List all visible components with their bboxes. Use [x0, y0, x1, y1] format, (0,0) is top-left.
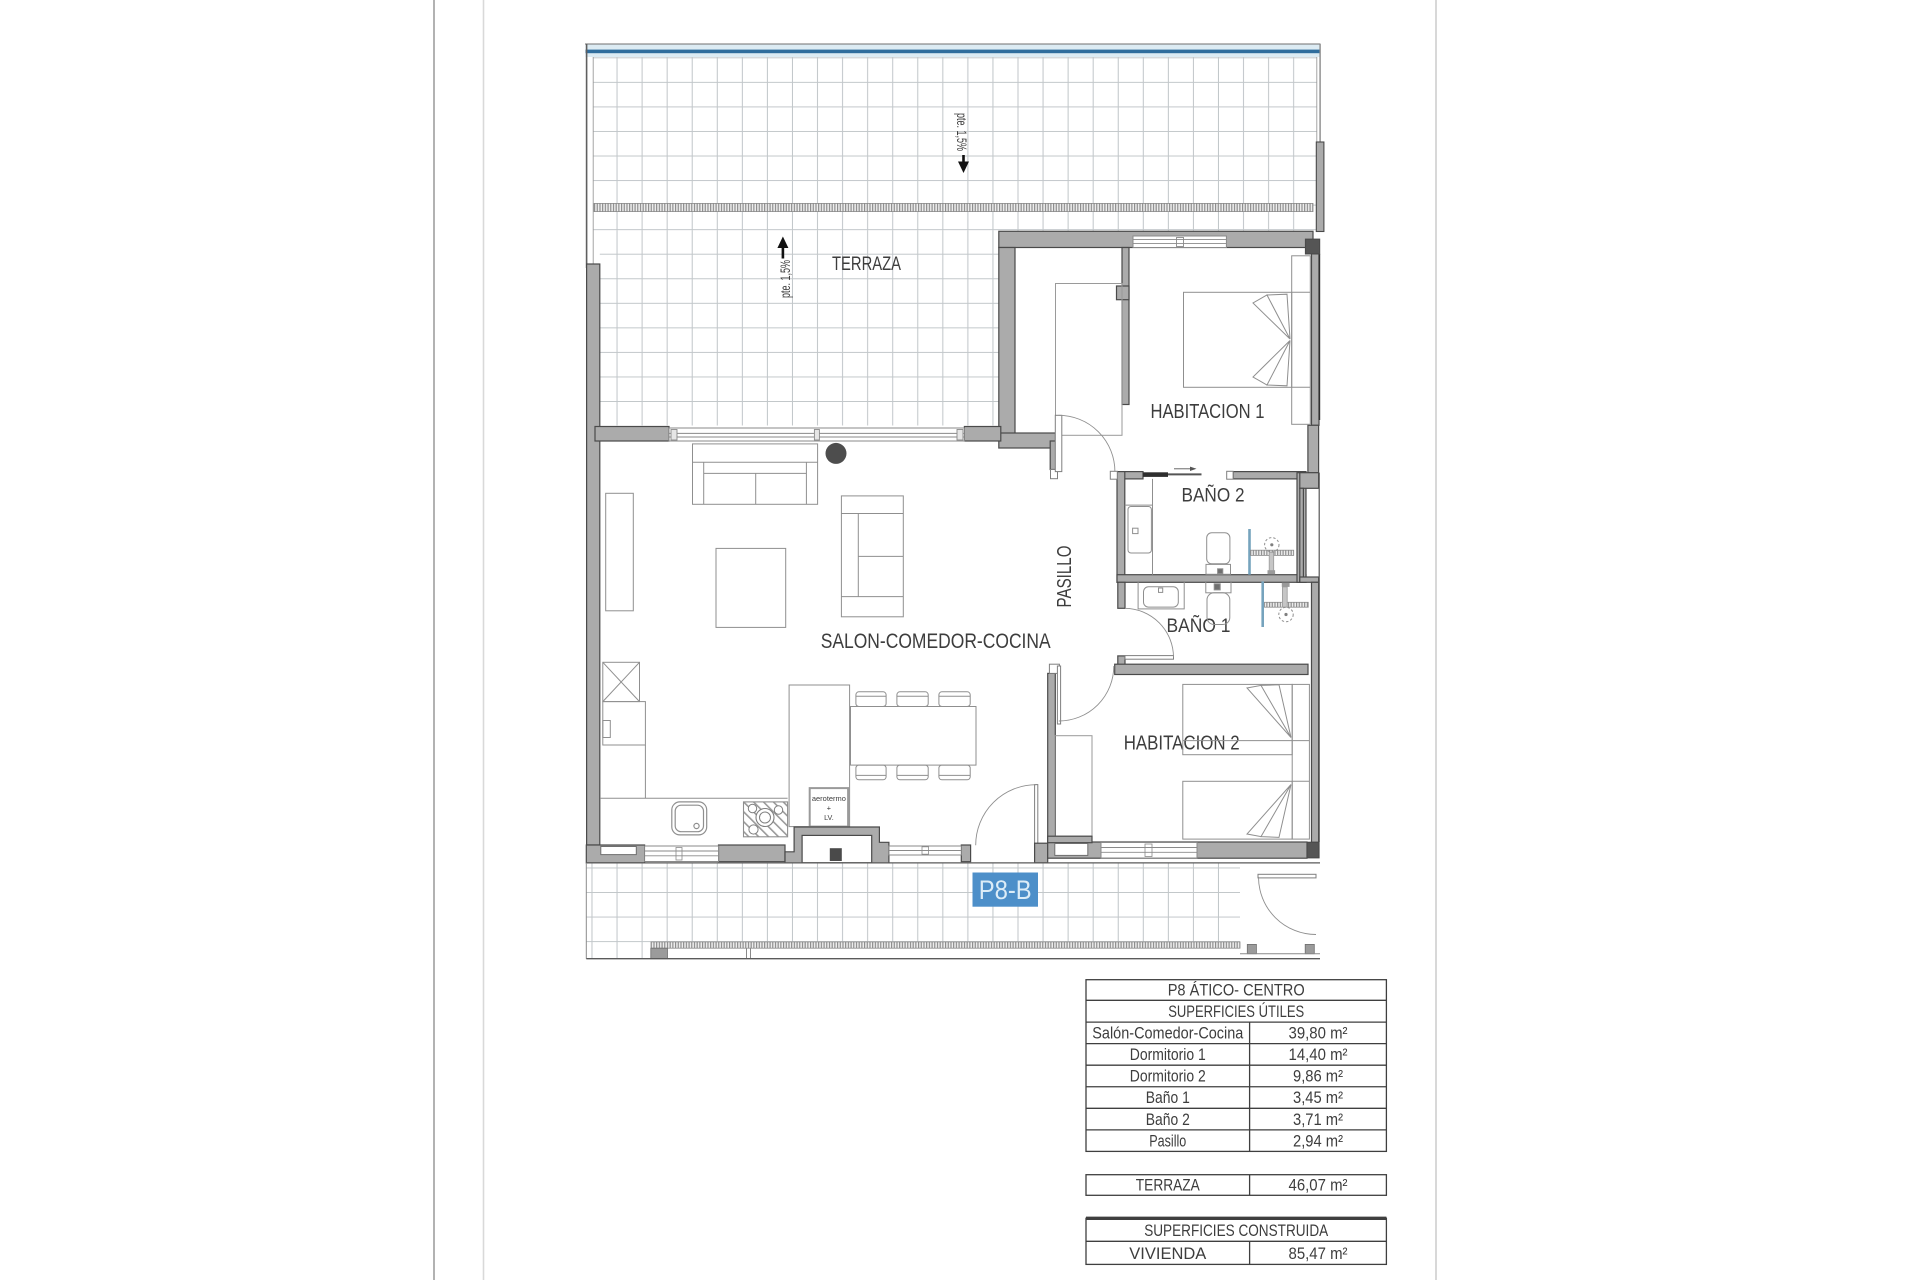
svg-text:3,45 m²: 3,45 m² — [1293, 1088, 1343, 1107]
svg-text:VIVIENDA: VIVIENDA — [1129, 1244, 1207, 1263]
svg-text:85,47 m²: 85,47 m² — [1289, 1244, 1348, 1263]
svg-text:Pasillo: Pasillo — [1149, 1131, 1186, 1150]
svg-text:Dormitorio 2: Dormitorio 2 — [1130, 1067, 1206, 1086]
svg-text:PASILLO: PASILLO — [1054, 546, 1076, 608]
svg-text:Baño 1: Baño 1 — [1146, 1088, 1190, 1107]
svg-text:14,40 m²: 14,40 m² — [1289, 1045, 1348, 1064]
svg-text:P8-B: P8-B — [979, 875, 1032, 905]
svg-text:Salón-Comedor-Cocina: Salón-Comedor-Cocina — [1092, 1024, 1243, 1043]
svg-text:HABITACION 1: HABITACION 1 — [1151, 401, 1265, 423]
svg-text:39,80 m²: 39,80 m² — [1289, 1024, 1348, 1043]
svg-text:Baño 2: Baño 2 — [1146, 1110, 1190, 1129]
svg-text:SUPERFICIES ÚTILES: SUPERFICIES ÚTILES — [1168, 1002, 1304, 1021]
svg-text:SUPERFICIES CONSTRUIDA: SUPERFICIES CONSTRUIDA — [1144, 1221, 1329, 1240]
svg-text:+: + — [827, 804, 831, 813]
svg-text:Dormitorio 1: Dormitorio 1 — [1130, 1045, 1206, 1064]
svg-text:2,94 m²: 2,94 m² — [1293, 1131, 1343, 1150]
svg-text:TERRAZA: TERRAZA — [1136, 1175, 1201, 1194]
svg-text:LV.: LV. — [824, 813, 834, 822]
svg-text:P8 ÁTICO- CENTRO: P8 ÁTICO- CENTRO — [1168, 981, 1305, 1000]
svg-text:TERRAZA: TERRAZA — [832, 254, 901, 275]
svg-text:HABITACION 2: HABITACION 2 — [1124, 732, 1240, 754]
svg-text:pte. 1,5%: pte. 1,5% — [954, 113, 969, 151]
svg-text:SALON-COMEDOR-COCINA: SALON-COMEDOR-COCINA — [821, 630, 1051, 653]
svg-text:aerotermo: aerotermo — [812, 794, 846, 803]
svg-text:BAÑO 2: BAÑO 2 — [1182, 483, 1245, 507]
svg-text:46,07 m²: 46,07 m² — [1289, 1175, 1348, 1194]
svg-text:9,86 m²: 9,86 m² — [1293, 1067, 1343, 1086]
svg-text:3,71 m²: 3,71 m² — [1293, 1110, 1343, 1129]
svg-text:pte. 1,5%: pte. 1,5% — [778, 260, 793, 298]
